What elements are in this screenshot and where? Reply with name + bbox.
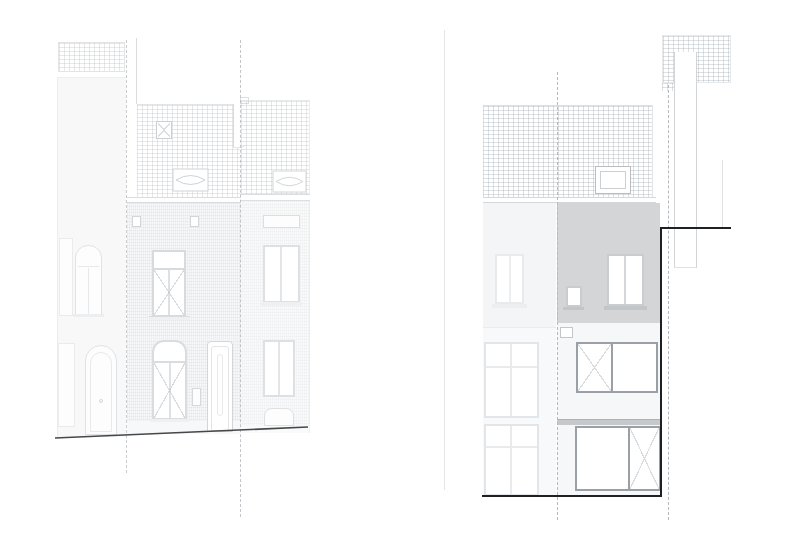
house-c-eaves-band [240,194,310,201]
parcel-boundary-dash-left [126,40,127,473]
neighbor-d-ff-window-transom [486,366,537,368]
neighbor-a-door [85,345,117,435]
neighbor-a-upper-window [59,238,73,316]
house-e-small-window-sill [563,307,584,310]
house-b-ff-window-casements [154,270,184,315]
street-elevation [0,0,400,547]
parcel-boundary-dash-rear-right [668,85,669,520]
party-firewall-line [136,38,137,104]
house-b-gf-window [152,340,187,420]
house-b-first-floor-window [152,250,186,317]
neighbor-d-ff-window-mullion [510,344,512,416]
house-c-gf-window-mullion [278,342,280,395]
house-e-ff-window [576,342,658,393]
house-c-roof-tiles [241,100,310,194]
house-e-upper-window-sill [604,306,647,310]
house-b-floor-line [127,338,240,339]
house-b-attic-vent-2 [190,216,199,227]
house-b-attic-vent-1 [132,216,141,227]
neighbor-d-ff-window [484,342,539,418]
neighbor-a-gf-window [58,343,75,427]
rear-roof-skylight-inner [600,171,626,189]
house-e-small-window [566,286,582,307]
house-b-roof-window-glass [158,123,170,137]
house-e-gf-window-casement [630,428,659,489]
drawing-canvas [0,0,800,547]
house-e-gf-window [575,426,661,491]
parcel-boundary-dash-mid [240,40,241,517]
neighbor-d-gf-window-transom [486,446,537,448]
house-e-upper-window-mullion [624,256,626,304]
house-c-basement-window [264,408,294,426]
neighbor-d-upper-window-sill [492,304,527,308]
neighbor-a-arched-window-transom [78,266,99,267]
neighbor-d-upper-window [495,254,524,304]
house-b-ff-window-sill [149,316,189,320]
rear-elevation [400,0,800,547]
house-e-ff-window-divider [611,344,613,391]
house-c-gf-window [263,340,295,397]
rear-party-wall-line [444,30,445,490]
house-e-lintel-band [557,419,661,425]
rear-background-post-line [722,160,723,228]
house-b-roof-window [156,121,172,139]
house-b-gf-window-sill [150,419,189,422]
parcel-boundary-dash-rear-left [557,72,558,520]
neighbor-a-roof-tiles [58,42,125,72]
neighbor-a-door-handle-icon [99,399,103,403]
house-c-attic-vent-band [263,215,300,228]
neighbor-d-gf-window-mullion [510,426,512,494]
house-e-wall-box [560,327,573,338]
house-b-entry-door [207,341,233,432]
rear-roof-skylight [595,166,631,194]
house-b-entry-door-glazing [217,354,223,416]
house-b-gf-window-casements [154,363,185,418]
neighbor-a-window-sill [73,314,104,317]
house-b-doorbell-box [192,388,201,406]
house-e-upper-window [607,254,644,306]
house-c-first-floor-window [263,245,300,303]
neighbor-a-door-leaf [90,352,112,432]
chimney-shaft [674,52,697,268]
neighbor-d-upper-window-mullion [509,256,511,302]
house-e-ff-window-casement [578,344,611,391]
house-c-ff-window-sill [261,302,302,306]
house-b-roof-tiles [137,104,240,200]
neighbor-d-gf-window [484,424,539,496]
neighbor-a-arched-window [75,245,102,315]
neighbor-a-arched-window-mullion [88,268,89,314]
house-c-ff-window-mullion [280,247,282,301]
